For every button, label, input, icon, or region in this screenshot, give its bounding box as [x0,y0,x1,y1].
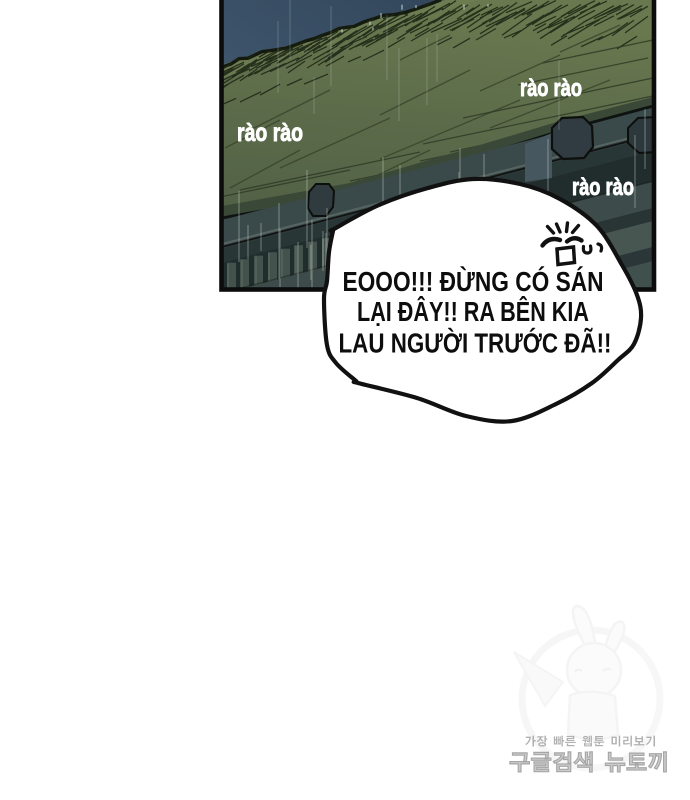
svg-text:rào rào: rào rào [520,75,582,102]
svg-text:LAU NGƯỜI TRƯỚC ĐÃ!!: LAU NGƯỜI TRƯỚC ĐÃ!! [339,328,612,359]
svg-text:rào rào: rào rào [237,119,303,147]
svg-text:EOOO!!! ĐỪNG CÓ SÁN: EOOO!!! ĐỪNG CÓ SÁN [343,266,604,297]
svg-text:LẠI ĐÂY!! RA BÊN KIA: LẠI ĐÂY!! RA BÊN KIA [357,296,589,327]
svg-text:rào rào: rào rào [572,174,634,201]
